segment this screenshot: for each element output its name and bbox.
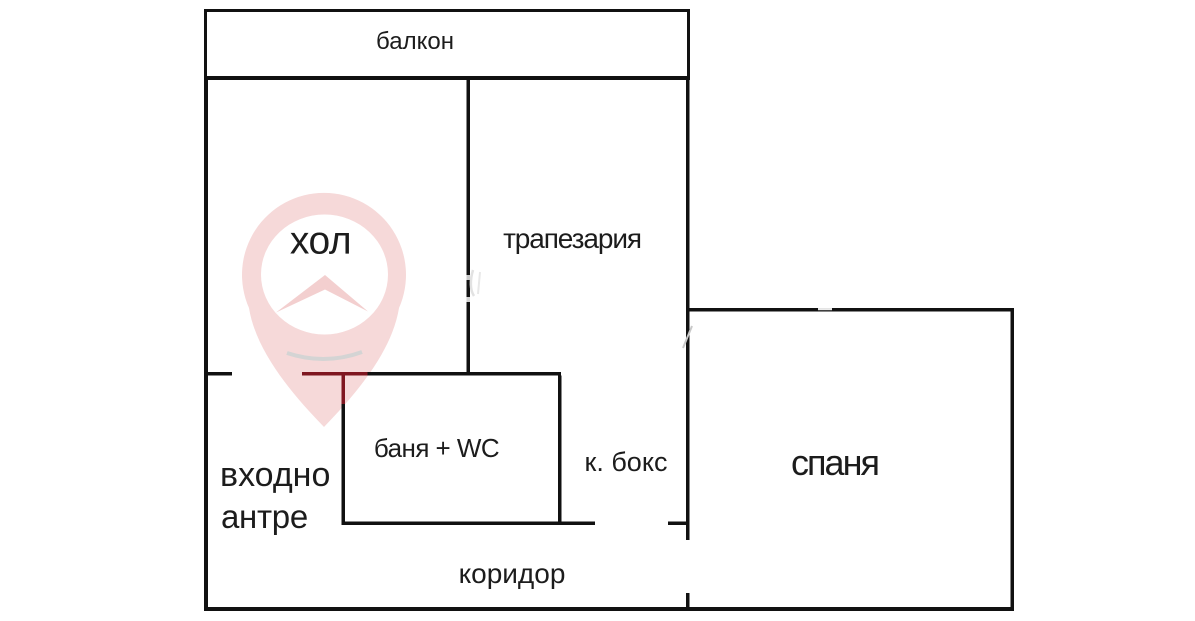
svg-text:коридор: коридор <box>459 558 566 589</box>
svg-text:хол: хол <box>290 220 351 263</box>
svg-text:к. бокс: к. бокс <box>585 447 668 477</box>
svg-text:балкон: балкон <box>376 28 454 55</box>
svg-text:антре: антре <box>221 498 308 535</box>
svg-text:трапезария: трапезария <box>503 223 641 254</box>
svg-text:входно: входно <box>220 456 330 494</box>
svg-text:спаня: спаня <box>791 442 878 483</box>
svg-text:баня + WC: баня + WC <box>374 433 499 463</box>
